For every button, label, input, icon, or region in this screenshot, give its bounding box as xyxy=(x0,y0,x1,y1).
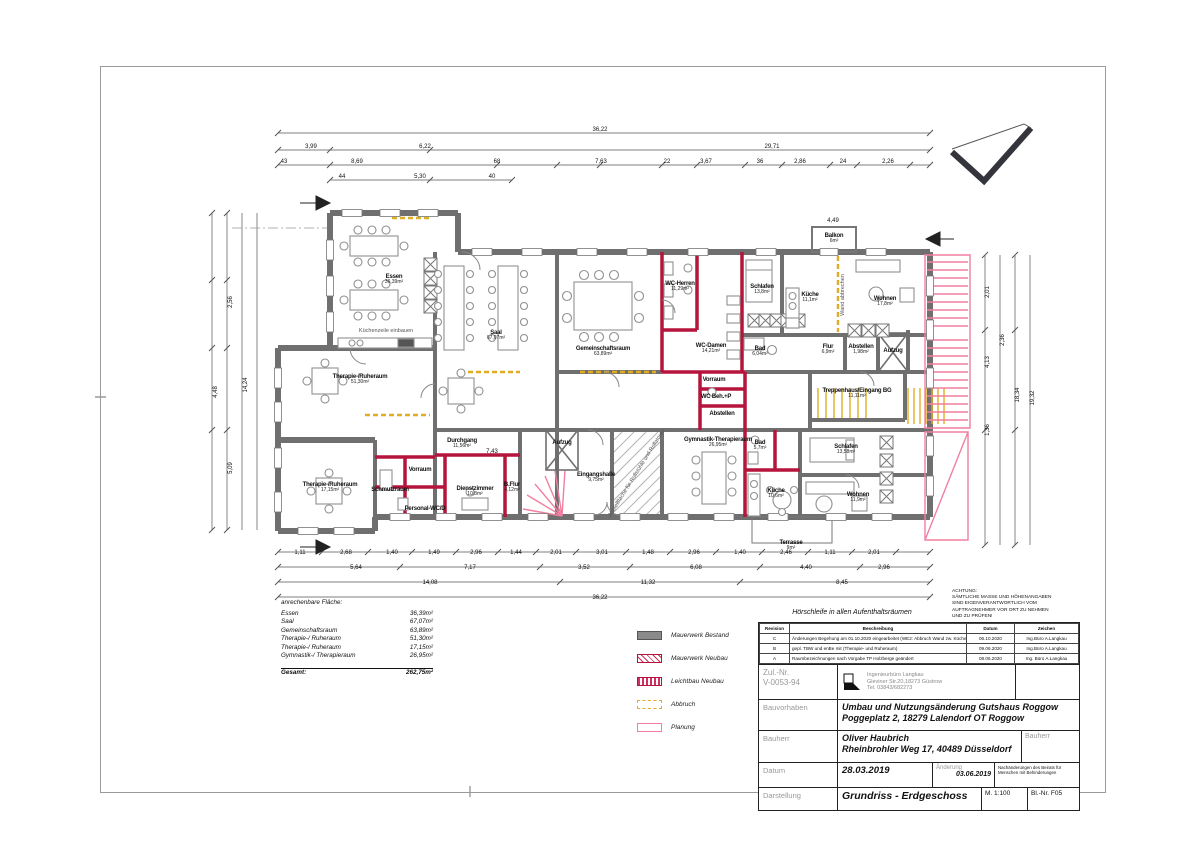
dimension-label: 1,11 xyxy=(294,550,305,556)
aenderung-cell: Änderung 03.06.2019 xyxy=(932,763,994,787)
room-label: Wohnen17,8m² xyxy=(874,296,896,308)
dimension-label: 11,32 xyxy=(641,580,656,586)
revision-row: Bgepl. TBW und enBe mit (Therapie- und R… xyxy=(760,644,1079,654)
dimension-label: 1,40 xyxy=(386,550,398,556)
massstab: M. 1:100 xyxy=(981,788,1027,810)
room-label: Wohnen11,9m² xyxy=(847,492,869,504)
legend-swatch-hatch-red xyxy=(637,654,662,663)
room-label: WC-Herren11,29m² xyxy=(665,281,695,293)
bauvorhaben-label: Bauvorhaben xyxy=(759,700,837,730)
dimension-label: 6,08 xyxy=(690,565,702,571)
darstellung-value: Grundriss - Erdgeschoss xyxy=(837,788,981,810)
legend-item: Mauerwerk Neubau xyxy=(637,654,729,663)
room-label: WC Beh.+P xyxy=(701,394,731,400)
dimension-label: 1,44 xyxy=(510,550,522,556)
dimension-label: 43 xyxy=(281,159,288,165)
room-label: Bad5,7m² xyxy=(754,440,767,452)
dimension-label: 2,01 xyxy=(868,550,880,556)
bauvorhaben-value: Umbau und Nutzungsänderung Gutshaus Rogg… xyxy=(837,700,1079,730)
dimension-label: 2,26 xyxy=(882,159,894,165)
room-label: Eingangshalle9,75m² xyxy=(577,472,615,484)
dimension-label: 36,22 xyxy=(592,127,607,133)
plan-annotation: Wand abbrechen xyxy=(840,274,846,316)
room-label: Gemeinschaftsraum63,89m² xyxy=(576,346,630,358)
dimension-label: 2,01 xyxy=(985,286,991,298)
dimension-label: 2,36 xyxy=(1000,334,1006,346)
datum-label: Datum xyxy=(759,763,837,787)
dimension-label: 40 xyxy=(489,174,496,180)
room-label: Therapie-/Ruheraum17,15m² xyxy=(303,482,358,494)
rev-header-revision: Revision xyxy=(760,624,790,634)
room-label: Vorraum xyxy=(409,467,432,473)
dimension-label: 3,52 xyxy=(578,565,590,571)
room-label: Treppenhaus/Eingang BG11,11m² xyxy=(823,388,892,400)
firm-phone: Tel. 03843/682273 xyxy=(867,685,942,692)
rev-header-beschreibung: Beschreibung xyxy=(790,624,967,634)
room-label: Vorraum xyxy=(703,377,726,383)
blatt-nr: Bl.-Nr. F05 xyxy=(1027,788,1079,810)
legend-item: Planung xyxy=(637,723,729,732)
room-label: Küche11,1m² xyxy=(801,292,818,304)
dimension-label: 1,11 xyxy=(824,550,835,556)
legend-label: Mauerwerk Neubau xyxy=(671,655,728,662)
dimension-label: 24 xyxy=(840,159,847,165)
room-label: Schlafen13,58m² xyxy=(834,444,857,456)
legend-swatch-dashed-yellow xyxy=(637,700,662,709)
firm-address: Gleviner Str.20,18273 Güstrow xyxy=(867,679,942,686)
dimension-label: 7,43 xyxy=(486,449,498,455)
beirat-note: Nachänderungen des Beirats für Menschen … xyxy=(994,763,1076,787)
area-table-row: Gemeinschaftsraum63,89m² xyxy=(281,627,433,636)
room-label: Aufzug xyxy=(552,440,571,446)
dimension-label: 2,01 xyxy=(550,550,562,556)
room-label: Dienstzimmer10,8m² xyxy=(457,486,494,498)
firm-logo xyxy=(842,672,862,692)
zul-nr: Zul.-Nr. V-0053-94 xyxy=(759,665,837,699)
xboxes xyxy=(424,258,893,503)
room-label: B.Flur4,12m² xyxy=(504,482,520,494)
room-label: Küche10,6m² xyxy=(767,488,784,500)
dimension-label: 3,67 xyxy=(700,159,712,165)
dimension-label: 2,96 xyxy=(878,565,890,571)
plan-annotation: Küchenzeile einbauen xyxy=(359,328,413,334)
room-label: Durchgang11,56m² xyxy=(447,438,477,450)
area-total-label: Gesamt: xyxy=(281,669,306,678)
dimension-label: 1,48 xyxy=(642,550,654,556)
legend-item: Leichtbau Neubau xyxy=(637,677,729,686)
area-table-row: Gymnastik-/ Therapieraum26,95m² xyxy=(281,652,433,661)
dimension-label: 4,13 xyxy=(985,356,991,368)
dimension-label: 4,48 xyxy=(213,386,219,398)
dimension-label: 7,17 xyxy=(464,565,476,571)
area-table-row: Therapie-/ Ruheraum17,15m² xyxy=(281,644,433,653)
dimension-label: 1,36 xyxy=(985,424,991,436)
legend-label: Abbruch xyxy=(671,701,695,708)
dimension-label: 1,40 xyxy=(734,550,746,556)
dimension-label: 2,68 xyxy=(340,550,352,556)
area-table-row: Therapie-/ Ruheraum51,30m² xyxy=(281,635,433,644)
zul-spare-cell xyxy=(1015,665,1079,699)
page: { "plan": { "rooms": [ {"name":"Essen","… xyxy=(0,0,1200,849)
legend-item: Abbruch xyxy=(637,700,729,709)
bauherr-label-2: Bauherr xyxy=(1021,731,1079,762)
dimension-label: 4,40 xyxy=(800,565,812,571)
revision-table: Revision Beschreibung Datum Zeichen CÄnd… xyxy=(759,623,1079,664)
area-table-title: anrechenbare Fläche: xyxy=(281,599,433,608)
dimension-label: 2,86 xyxy=(794,159,806,165)
dimension-label: 5,09 xyxy=(228,462,234,474)
legend: Mauerwerk BestandMauerwerk NeubauLeichtb… xyxy=(637,631,729,746)
dimension-label: 4,49 xyxy=(827,218,839,224)
dimension-label: 68 xyxy=(494,159,501,165)
room-label: Abstellen xyxy=(709,411,734,417)
room-label: Aufzug xyxy=(883,348,902,354)
dimension-label: 2,56 xyxy=(228,296,234,308)
room-label: Therapie-/Ruheraum51,30m² xyxy=(333,374,388,386)
checkmark xyxy=(952,124,1031,181)
firm-block: Ingenieurbüro Langkau Gleviner Str.20,18… xyxy=(837,665,1015,699)
dimension-label: 18,34 xyxy=(1015,387,1021,402)
dimension-label: 7,63 xyxy=(595,159,607,165)
dimension-label: 22 xyxy=(664,159,671,165)
dimension-label: 2,96 xyxy=(688,550,700,556)
room-label: Schmutzraum xyxy=(371,487,408,493)
darstellung-label: Darstellung xyxy=(759,788,837,810)
revision-row: ARaumbezeichnungen nach Vorgabe TP Holzb… xyxy=(760,654,1079,664)
dimension-label: 6,22 xyxy=(419,144,431,150)
rev-header-datum: Datum xyxy=(967,624,1015,634)
legend-label: Mauerwerk Bestand xyxy=(671,632,729,639)
firm-name: Ingenieurbüro Langkau xyxy=(867,672,942,679)
dimension-label: 14,08 xyxy=(422,580,437,586)
titleblock: Revision Beschreibung Datum Zeichen CÄnd… xyxy=(758,622,1080,811)
area-total-value: 262,75m² xyxy=(406,669,433,678)
room-label: Personal-WC/D xyxy=(405,506,446,512)
legend-item: Mauerwerk Bestand xyxy=(637,631,729,640)
room-label: Saal67,07m² xyxy=(487,330,505,342)
dimension-label: 14,24 xyxy=(243,377,249,392)
rev-header-zeichen: Zeichen xyxy=(1015,624,1079,634)
dimension-label: 29,71 xyxy=(764,144,779,150)
dimension-label: 3,99 xyxy=(305,144,317,150)
bauherr-label: Bauherr xyxy=(759,731,837,762)
dimension-label: 2,96 xyxy=(470,550,482,556)
legend-swatch-solid-gray xyxy=(637,631,662,640)
legend-label: Planung xyxy=(671,724,695,731)
legend-swatch-outline-pink xyxy=(637,723,662,732)
dimension-label: 8,45 xyxy=(836,580,848,586)
room-label: Flur6,9m² xyxy=(822,344,835,356)
room-label: Bad6,04m² xyxy=(752,346,768,358)
area-table-row: Essen36,39m² xyxy=(281,610,433,619)
area-table-row: Saal67,07m² xyxy=(281,618,433,627)
dimension-label: 1,49 xyxy=(428,550,440,556)
legend-label: Leichtbau Neubau xyxy=(671,678,724,685)
legend-swatch-dense-red xyxy=(637,677,662,686)
room-label: Schlafen13,8m² xyxy=(750,284,773,296)
room-label: Gymnastik-Therapieraum26,95m² xyxy=(684,437,752,449)
dimension-label: 36 xyxy=(757,159,764,165)
hearing-loop-note: Hörschleife in allen Aufenthaltsräumen xyxy=(752,609,952,616)
dimension-label: 5,64 xyxy=(350,565,362,571)
datum-value: 28.03.2019 xyxy=(837,763,932,787)
dimension-label: 44 xyxy=(339,174,346,180)
room-label: Abstellen1,98m² xyxy=(848,344,873,356)
dimension-label: 19,32 xyxy=(1030,390,1036,405)
bauherr-value: Oliver Haubrich Rheinbrohler Weg 17, 404… xyxy=(837,731,1021,762)
dimension-label: 8,69 xyxy=(351,159,363,165)
room-label: WC-Damen14,21m² xyxy=(696,343,726,355)
achtung-note: ACHTUNG:SÄMTLICHE MASSE UND HÖHENANGABEN… xyxy=(952,589,1087,620)
area-table: anrechenbare Fläche: Essen36,39m²Saal67,… xyxy=(281,599,433,677)
dimension-label: 3,01 xyxy=(596,550,608,556)
room-label: Terrasse9m² xyxy=(780,540,803,552)
room-label: Essen36,39m² xyxy=(385,274,403,286)
revision-row: CÄnderungen Begehung am 01.10.2020 einge… xyxy=(760,634,1079,644)
dimension-label: 5,30 xyxy=(414,174,426,180)
room-label: Balkon6m² xyxy=(825,233,844,245)
dimension-label: 36,22 xyxy=(592,595,607,601)
